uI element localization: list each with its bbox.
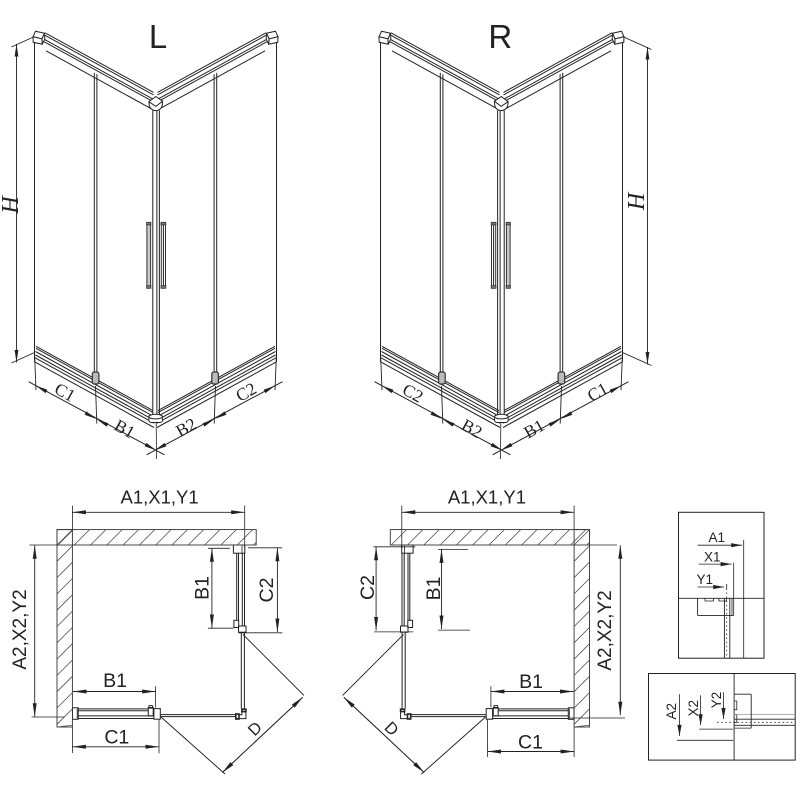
svg-text:A2: A2 xyxy=(664,703,679,720)
svg-text:B1: B1 xyxy=(519,671,543,693)
svg-text:A1,X1,Y1: A1,X1,Y1 xyxy=(121,487,199,508)
svg-text:A1: A1 xyxy=(709,530,726,545)
svg-text:Y1: Y1 xyxy=(697,572,714,587)
svg-text:A2,X2,Y2: A2,X2,Y2 xyxy=(595,590,616,670)
svg-text:B1: B1 xyxy=(423,577,445,601)
svg-text:C1: C1 xyxy=(104,727,129,749)
svg-text:C2: C2 xyxy=(256,578,278,603)
svg-text:R: R xyxy=(488,18,512,55)
svg-text:X2: X2 xyxy=(686,700,701,717)
svg-text:H: H xyxy=(0,195,24,215)
svg-text:X1: X1 xyxy=(704,550,721,565)
svg-text:H: H xyxy=(624,191,650,211)
svg-text:C1: C1 xyxy=(518,732,543,754)
svg-text:L: L xyxy=(149,18,167,55)
svg-text:B1: B1 xyxy=(103,670,127,692)
svg-text:B1: B1 xyxy=(192,576,214,600)
svg-text:A2,X2,Y2: A2,X2,Y2 xyxy=(10,589,31,669)
svg-text:Y2: Y2 xyxy=(709,692,724,709)
svg-text:C2: C2 xyxy=(357,575,379,600)
svg-text:A1,X1,Y1: A1,X1,Y1 xyxy=(448,487,526,508)
